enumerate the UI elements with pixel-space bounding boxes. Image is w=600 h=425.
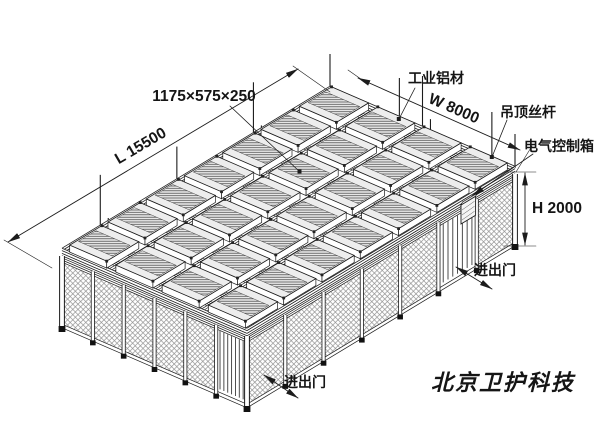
label-door-right: 进出门 bbox=[474, 262, 516, 278]
width-extension-line-left bbox=[348, 70, 368, 84]
unit-size-leader-dot bbox=[298, 170, 302, 174]
aluminum-leader-dot bbox=[397, 117, 401, 121]
ceiling-rod-leader-dot bbox=[490, 155, 494, 159]
dimension-height: H 2000 bbox=[532, 200, 582, 217]
aluminum-leader bbox=[399, 88, 415, 119]
isometric-drawing-canvas: 1175×575×250 工业铝材 吊顶丝杆 电气控制箱 L 15500 W 8… bbox=[0, 0, 600, 425]
isometric-structure-drawing: 1175×575×250 工业铝材 吊顶丝杆 电气控制箱 L 15500 W 8… bbox=[0, 0, 600, 425]
length-extension-line-left bbox=[4, 240, 52, 268]
label-control-box: 电气控制箱 bbox=[524, 138, 594, 154]
label-door-bottom: 进出门 bbox=[284, 374, 326, 390]
label-ceiling-rod: 吊顶丝杆 bbox=[500, 104, 556, 120]
length-extension-line-right bbox=[293, 66, 330, 92]
label-unit-size: 1175×575×250 bbox=[152, 88, 255, 105]
dimension-length: L 15500 bbox=[112, 124, 169, 167]
dimension-width: W 8000 bbox=[426, 90, 482, 127]
watermark: 北京卫护科技 bbox=[431, 370, 576, 395]
label-aluminum-profile: 工业铝材 bbox=[408, 70, 464, 86]
